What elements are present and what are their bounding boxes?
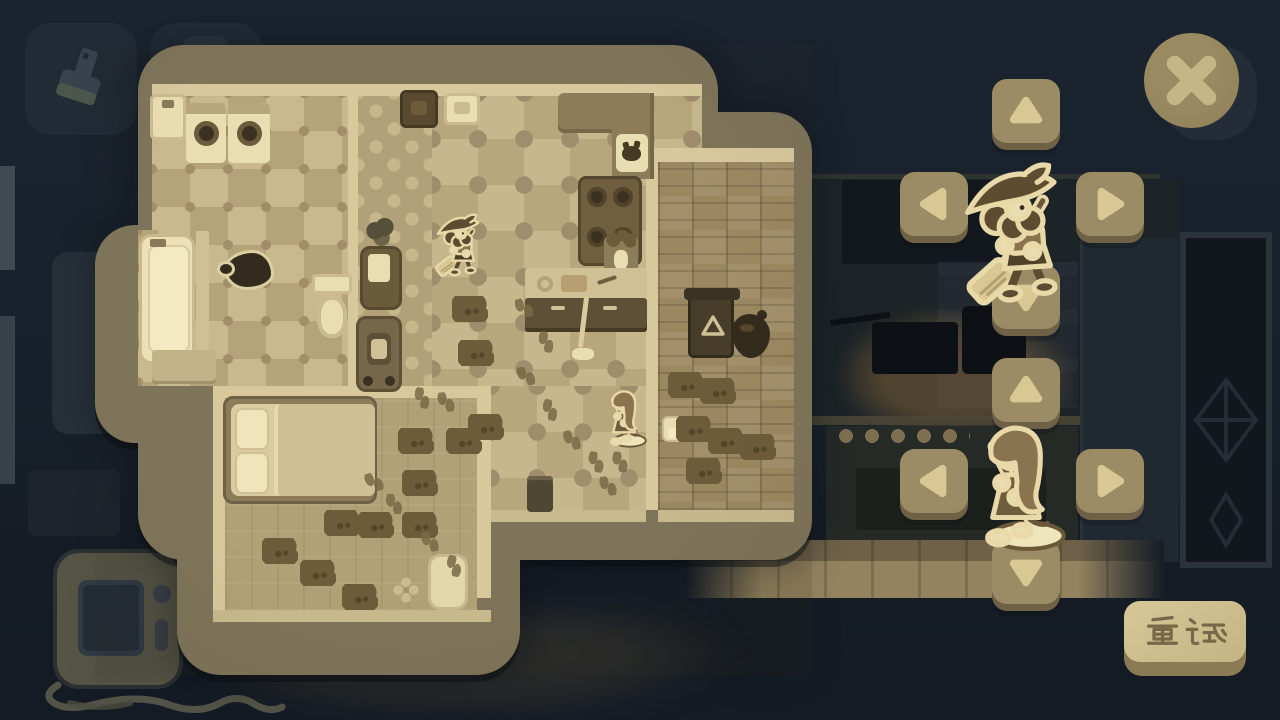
footprint bbox=[587, 451, 606, 473]
footprint bbox=[437, 391, 455, 413]
maid-with-mop bbox=[955, 412, 1077, 554]
dirt-pile bbox=[262, 538, 298, 564]
dirt-pile bbox=[686, 458, 722, 484]
up-arrow-icon bbox=[1007, 371, 1045, 409]
down-arrow-icon bbox=[1007, 553, 1045, 591]
game-screen: 重试 bbox=[0, 0, 1280, 720]
dpad-witch-right-button[interactable] bbox=[1076, 172, 1144, 236]
footprint bbox=[514, 296, 535, 319]
dirt-pile bbox=[452, 296, 488, 322]
dirt-pile bbox=[458, 340, 494, 366]
dirt-pile bbox=[300, 560, 336, 586]
dirt-pile bbox=[740, 434, 776, 460]
close-button[interactable] bbox=[1144, 33, 1239, 128]
dirt-pile bbox=[398, 428, 434, 454]
footprint bbox=[562, 429, 581, 451]
footprint bbox=[611, 451, 629, 473]
left-arrow-icon bbox=[915, 185, 953, 223]
dirt-pile bbox=[676, 416, 712, 442]
footprint bbox=[516, 364, 537, 387]
dirt-stain bbox=[224, 250, 274, 290]
dirt-pile bbox=[342, 584, 378, 610]
footprint bbox=[444, 554, 464, 577]
map-maid-with-mop bbox=[596, 384, 652, 449]
footprint bbox=[599, 475, 618, 497]
dirt-pile bbox=[402, 470, 438, 496]
left-arrow-icon bbox=[915, 462, 953, 500]
dirt-pile bbox=[708, 428, 744, 454]
footprint bbox=[536, 331, 555, 353]
dpad-maid-right-button[interactable] bbox=[1076, 449, 1144, 513]
up-arrow-icon bbox=[1007, 92, 1045, 130]
map-witch-with-broom bbox=[430, 206, 488, 278]
dirt-pile bbox=[358, 512, 394, 538]
footprint bbox=[421, 531, 440, 553]
right-arrow-icon bbox=[1091, 185, 1129, 223]
witch-with-broom bbox=[947, 144, 1084, 310]
right-arrow-icon bbox=[1091, 462, 1129, 500]
decal-layer bbox=[0, 0, 1280, 720]
dirt-pile bbox=[668, 372, 704, 398]
dirt-pile bbox=[324, 510, 360, 536]
footprint bbox=[412, 387, 431, 409]
map-panel bbox=[0, 0, 1280, 720]
footprint bbox=[386, 494, 402, 514]
dpad-witch-up-button[interactable] bbox=[992, 79, 1060, 143]
footprint bbox=[540, 399, 560, 422]
close-x-icon bbox=[1144, 33, 1239, 128]
dirt-pile bbox=[468, 414, 504, 440]
retry-button[interactable]: 重试 bbox=[1124, 601, 1246, 676]
dirt-pile bbox=[700, 378, 736, 404]
footprint bbox=[363, 470, 385, 494]
